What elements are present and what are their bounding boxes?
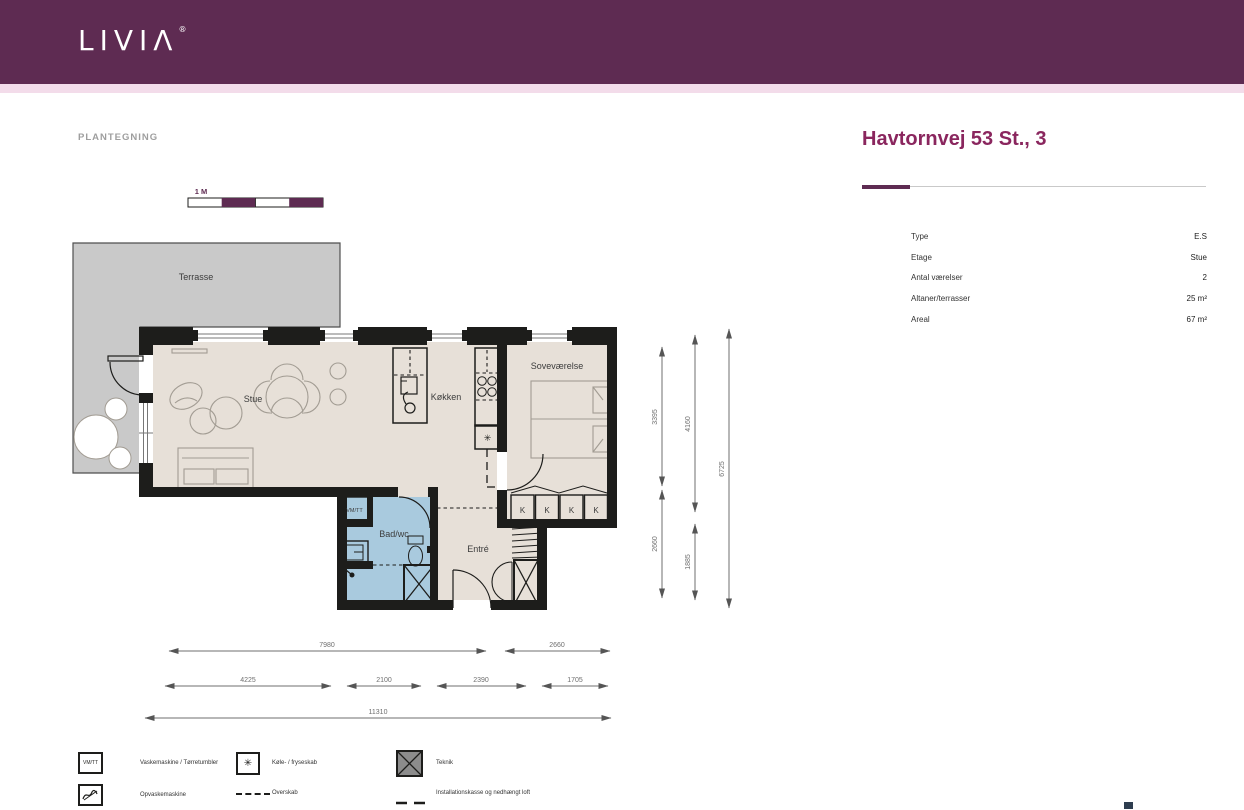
page-title: Havtornvej 53 St., 3	[862, 128, 1047, 151]
logo-text: LIVIΛ	[78, 24, 178, 57]
terrace-chair	[109, 447, 131, 469]
row-label: Etage	[911, 253, 932, 262]
table-row: Antal værelser 2	[911, 273, 1207, 294]
legend-label: Vaskemaskine / Tørretumbler	[140, 760, 218, 766]
header-bar: LIVIΛ®	[0, 0, 1244, 84]
dim-4225: 4225	[240, 677, 256, 684]
teknik-legend-icon	[396, 750, 423, 777]
legend-label: Installationskasse og nedhængt loft	[436, 790, 530, 796]
floorplan-drawing: 1 M	[0, 100, 800, 740]
living-room-label: Stue	[244, 394, 263, 404]
divider-accent	[862, 185, 910, 189]
window	[527, 329, 572, 342]
terrace-sliding-window	[139, 398, 153, 468]
legend-label: Opvaskemaskine	[140, 792, 186, 798]
page-corner-mark	[1124, 802, 1133, 809]
row-label: Antal værelser	[911, 273, 963, 282]
livia-logo: LIVIΛ®	[78, 24, 186, 57]
row-value: 67 m²	[1187, 315, 1207, 324]
washer-dryer-label: VM/TT	[346, 508, 363, 514]
window	[427, 329, 467, 342]
wardrobe-label: K	[569, 506, 575, 515]
fridge-symbol: ✳	[484, 433, 492, 443]
dim-2660-v: 2660	[652, 536, 659, 552]
header-accent-strip	[0, 84, 1244, 93]
scale-bar: 1 M	[188, 187, 323, 207]
dim-2660-h: 2660	[549, 642, 565, 649]
window	[193, 329, 268, 342]
wardrobe-label: K	[593, 506, 599, 515]
legend-label: Teknik	[436, 760, 453, 766]
kitchen-label: Køkken	[431, 392, 462, 402]
suspended-ceiling-legend-icon	[396, 792, 432, 810]
dim-2390: 2390	[473, 677, 489, 684]
wardrobe-label: K	[544, 506, 550, 515]
bedroom-label: Soveværelse	[531, 361, 584, 371]
apartment-info-table: Type E.S Etage Stue Antal værelser 2 Alt…	[911, 232, 1207, 335]
terrace-label: Terrasse	[179, 272, 214, 282]
row-value: Stue	[1191, 253, 1207, 262]
table-row: Type E.S	[911, 232, 1207, 253]
legend-label: Køle- / fryseskab	[272, 760, 317, 766]
fridge-legend-icon: ✳	[236, 752, 260, 775]
bathroom-label: Bad/wc	[379, 529, 409, 539]
row-value: 2	[1203, 273, 1207, 282]
row-value: 25 m²	[1187, 294, 1207, 303]
table-row: Etage Stue	[911, 253, 1207, 274]
dim-6725: 6725	[719, 461, 726, 477]
window	[320, 329, 358, 342]
row-label: Type	[911, 232, 928, 241]
dim-3395: 3395	[652, 409, 659, 425]
terrace-chair	[105, 398, 127, 420]
row-value: E.S	[1194, 232, 1207, 241]
title-divider	[862, 184, 1206, 189]
dishwasher-legend-icon	[78, 784, 103, 806]
entry-label: Entré	[467, 544, 489, 554]
registered-mark: ®	[178, 25, 186, 34]
dim-1705: 1705	[567, 677, 583, 684]
scale-bar-label: 1 M	[195, 187, 208, 196]
dim-7980: 7980	[319, 642, 335, 649]
dim-2100: 2100	[376, 677, 392, 684]
dim-11310: 11310	[369, 709, 388, 716]
washer-dryer-legend-icon: VM/TT	[78, 752, 103, 774]
table-row: Altaner/terrasser 25 m²	[911, 294, 1207, 315]
overhead-cabinet-legend-icon	[236, 793, 270, 795]
legend-label: Overskab	[272, 790, 298, 796]
row-label: Altaner/terrasser	[911, 294, 970, 303]
row-label: Areal	[911, 315, 930, 324]
table-row: Areal 67 m²	[911, 315, 1207, 336]
divider-line	[910, 186, 1206, 187]
wardrobe-label: K	[520, 506, 526, 515]
dim-4160: 4160	[685, 416, 692, 432]
dim-1885: 1885	[685, 554, 692, 570]
